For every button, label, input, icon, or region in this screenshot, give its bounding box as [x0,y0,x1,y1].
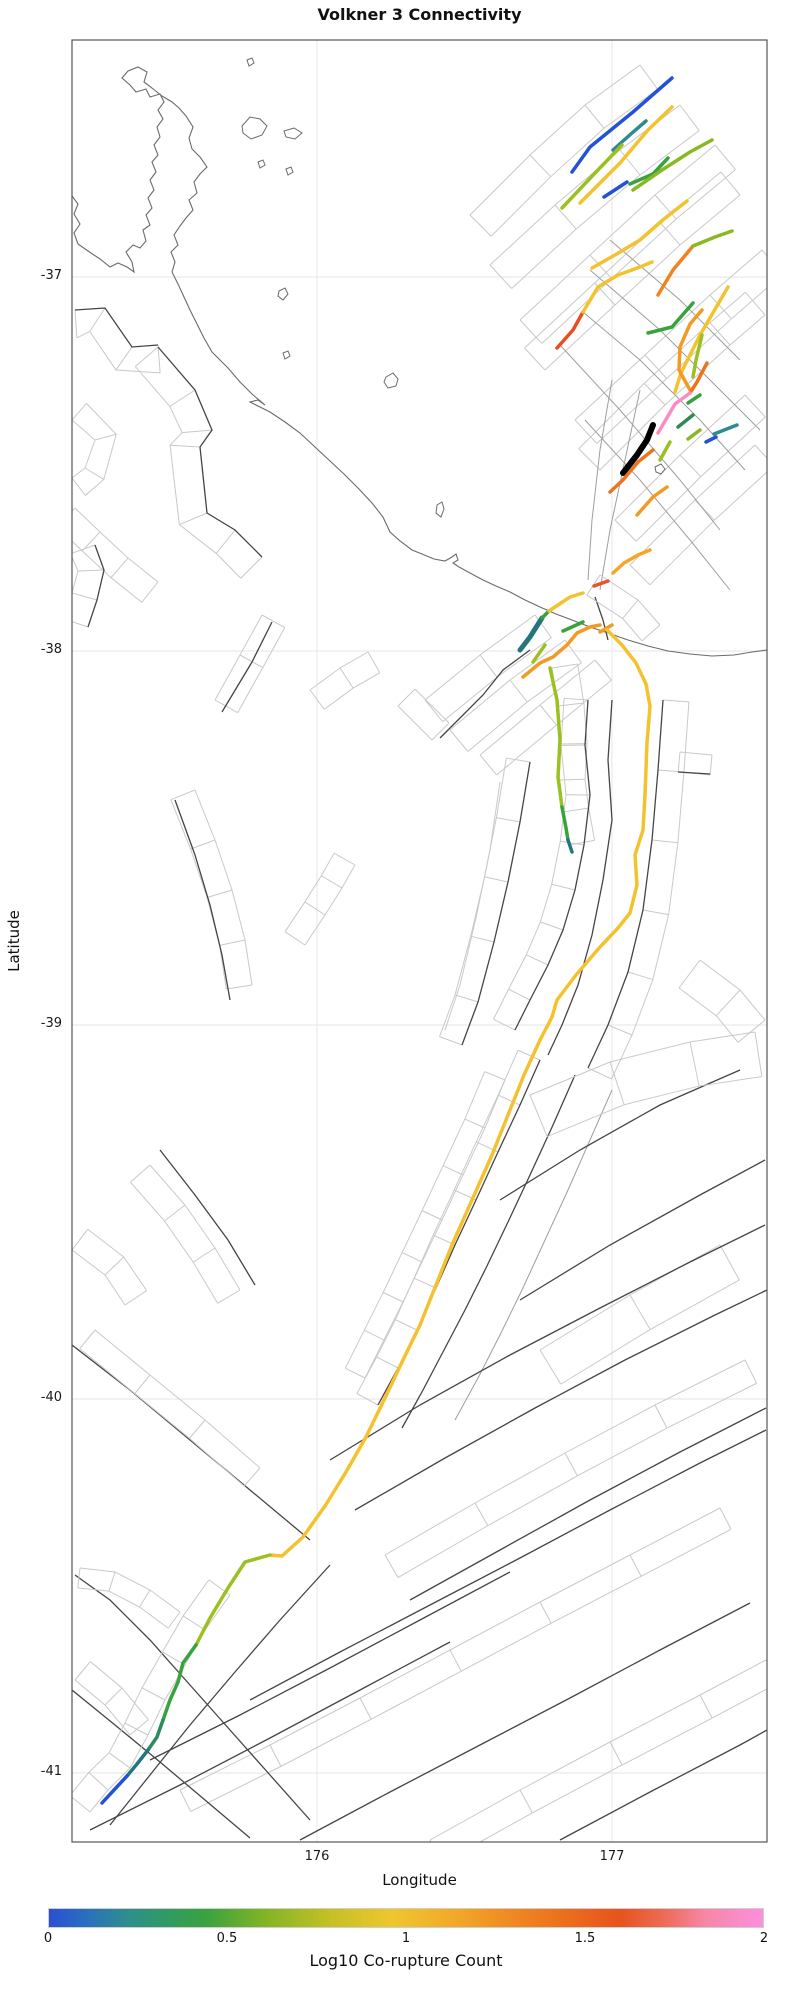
fault-trace-gray [160,1150,255,1285]
fault-trace-gray [72,420,95,478]
island-outline [283,351,290,359]
fault-polygon-rung [385,1555,398,1578]
colorbar [48,1908,764,1928]
figure: Volkner 3 Connectivity Latitude Longitud… [0,0,800,1989]
fault-polygon-edge [88,1229,147,1290]
fault-polygon-rung [89,1773,108,1790]
y-tick-label: -38 [0,642,62,657]
fault-polygon-rung [615,520,636,541]
fault-trace-gray [180,1508,720,1790]
fault-polygon-rung [480,755,497,775]
fault-trace-gray [305,865,355,945]
fault-polygon-rung [170,390,195,406]
fault-trace-gray [330,1225,765,1460]
co-rupture-trace [196,1555,270,1645]
fault-polygon-rung [655,1405,667,1428]
fault-polygon-rung [755,445,774,466]
fault-polygon-rung [414,1278,436,1288]
fault-polygon-rung [450,730,468,752]
fault-polygon-rung [526,955,548,965]
fault-polygon-rung [368,652,380,673]
fault-polygon-rung [660,222,680,245]
fault-polygon-edge [357,1050,518,1393]
fault-polygon-rung [745,395,765,417]
y-axis-label: Latitude [0,901,29,981]
fault-polygon-rung [398,689,415,706]
fault-trace-gray [250,1430,766,1700]
fault-trace-gray [530,1032,755,1095]
co-rupture-trace [580,107,672,203]
map-layers [57,40,783,1863]
co-rupture-trace [693,231,732,246]
fault-polygon-rung [721,172,740,195]
fault-trace-gray [402,1075,575,1428]
fault-polygon-rung [520,320,542,343]
co-rupture-trace [592,201,687,268]
fault-polygon-rung [72,1229,88,1250]
fault-trace-gray [588,700,663,1068]
fault-polygon-rung [710,323,730,345]
fault-polygon-rung [95,434,116,440]
fault-trace-gray [425,615,535,700]
fault-polygon-rung [510,680,527,702]
fault-polygon-rung [216,530,235,553]
fault-trace-gray [630,445,755,565]
co-rupture-trace [568,840,572,852]
fault-polygon-rung [552,884,575,890]
fault-trace-gray [398,706,432,740]
fault-polygon-rung [585,105,604,128]
fault-polygon-rung [430,1840,443,1863]
x-tick-label: 177 [590,1849,634,1864]
fault-polygon-rung [63,619,88,627]
x-tick-label: 176 [295,1849,339,1864]
fault-polygon-edge [398,1383,757,1577]
fault-trace-gray [470,65,640,215]
fault-trace-gray [222,622,272,712]
fault-polygon-rung [241,557,262,578]
co-rupture-trace [714,425,737,434]
fault-polygon-rung [745,1360,757,1383]
fault-polygon-edge [587,595,642,641]
fault-polygon-rung [207,890,232,897]
co-rupture-trace [148,1720,163,1750]
fault-polygon-rung [565,1453,577,1476]
co-rupture-trace [658,246,693,295]
co-rupture-trace [637,487,667,515]
fault-polygon-edge [285,853,334,931]
co-rupture-trace [563,622,583,631]
co-rupture-trace [163,1645,196,1720]
fault-trace-gray [450,640,565,730]
y-tick-label: -41 [0,1764,62,1779]
co-rupture-trace [549,593,583,611]
fault-polygon-rung [630,1295,650,1330]
fault-polygon-rung [191,840,215,849]
fault-polygon-rung [70,1796,90,1812]
fault-polygon-rung [530,1095,547,1137]
fault-polygon-rung [220,940,245,945]
fault-polygon-rung [623,600,638,618]
fault-polygon-rung [135,1375,150,1394]
fault-polygon-rung [720,1245,739,1280]
fault-polygon-rung [72,403,86,420]
co-rupture-trace [706,437,716,442]
fault-trace-gray [150,1165,240,1290]
fault-polygon-rung [630,1555,641,1576]
fault-polygon-rung [140,1590,150,1607]
fault-polygon-rung [555,205,576,229]
fault-polygon-rung [218,1290,240,1303]
colorbar-tick-label: 2 [742,1931,786,1946]
fault-polygon-rung [579,449,600,470]
fault-polygon-edge [63,554,78,619]
fault-polygon-rung [90,308,105,331]
island-outline [286,167,293,175]
co-rupture-trace [572,78,672,172]
fault-polygon-rung [485,1072,505,1080]
fault-polygon-rung [383,1292,403,1302]
co-rupture-trace [688,395,700,403]
fault-polygon-rung [105,1257,124,1275]
fault-trace-gray [72,1250,125,1305]
fault-trace-gray [445,782,500,1030]
fault-polygon-edge [547,1076,762,1136]
fault-polygon-rung [663,700,689,702]
fault-polygon-rung [540,1602,551,1623]
fault-polygon-rung [345,1368,365,1378]
fault-polygon-rung [520,1790,532,1813]
fault-polygon-edge [85,403,116,495]
fault-polygon-edge [494,698,566,1019]
fault-polygon-edge [561,1280,740,1384]
fault-polygon-rung [116,347,132,370]
fault-trace-gray [585,420,730,590]
fault-polygon-rung [450,1650,461,1671]
colorbar-label: Log10 Co-rupture Count [48,1951,764,1970]
fault-polygon-rung [630,565,650,585]
fault-polygon-rung [334,853,355,865]
fault-polygon-rung [710,755,712,775]
fault-polygon-rung [71,545,95,554]
fault-polygon-rung [643,910,669,915]
co-rupture-trace [678,415,693,427]
colorbar-tick-label: 1 [384,1931,428,1946]
fault-polygon-rung [715,145,735,170]
fault-polygon-rung [215,700,238,713]
fault-polygon-rung [171,790,195,800]
fault-polygon-rung [130,1165,150,1182]
fault-polygon-rung [680,105,699,131]
fault-polygon-rung [690,1042,699,1086]
fault-polygon-rung [285,932,305,945]
fault-polygon-rung [109,1753,130,1768]
fault-polygon-rung [471,936,494,942]
fault-polygon-rung [559,779,585,780]
fault-polygon-rung [561,745,585,746]
fault-trace-gray [560,345,720,530]
fault-polygon-rung [655,195,676,219]
fault-polygon-edge [542,170,736,344]
fault-polygon-rung [305,902,325,915]
fault-polygon-rung [540,922,563,930]
fault-trace-gray [595,597,608,640]
co-rupture-trace [613,550,650,573]
co-rupture-trace [270,630,650,1556]
fault-polygon-rung [111,558,128,578]
fault-polygon-rung [475,1503,488,1526]
fault-polygon-edge [238,628,285,713]
fault-polygon-rung [244,1468,260,1486]
fault-trace-gray [90,1642,450,1830]
island-outline [278,288,288,300]
fault-polygon-rung [321,876,342,888]
fault-polygon-rung [525,348,545,370]
fault-polygon-rung [645,355,667,378]
fault-polygon-rung [443,1166,463,1175]
fault-polygon-rung [168,1612,180,1628]
fault-polygon-rung [465,1119,485,1128]
fault-polygon-rung [78,570,104,571]
fault-polygon-rung [183,1616,205,1630]
fault-trace-gray [560,1730,767,1840]
island-outline [436,502,444,517]
island-outline [284,128,302,139]
fault-trace-gray [410,1408,766,1600]
fault-polygon-rung [595,660,611,680]
fault-polygon-rung [563,808,589,812]
fault-polygon-edge [612,702,689,1079]
fault-polygon-rung [75,1662,90,1680]
fault-polygon-edge [679,988,738,1042]
fault-polygon-rung [226,985,252,989]
co-rupture-trace [583,262,652,312]
map-canvas [0,0,800,1989]
fault-polygon-rung [564,698,588,700]
fault-trace-gray [88,545,104,627]
colorbar-tick-label: 1.5 [563,1931,607,1946]
fault-polygon-rung [105,1688,122,1705]
fault-polygon-rung [455,995,478,1002]
colorbar-tick-label: 0.5 [205,1931,249,1946]
fault-polygon-rung [470,215,491,236]
fault-polygon-rung [364,1330,384,1340]
fault-polygon-rung [72,478,85,495]
fault-polygon-rung [340,668,353,688]
fault-polygon-rung [762,250,783,274]
island-outline [247,58,254,66]
fault-polygon-rung [628,972,653,980]
y-tick-label: -40 [0,1390,62,1405]
colorbar-tick-label: 0 [26,1931,70,1946]
fault-polygon-rung [738,1020,765,1042]
fault-trace-gray [588,380,612,580]
island-outline [258,160,265,168]
fault-trace-gray [75,308,158,347]
fault-polygon-rung [642,625,660,641]
fault-polygon-rung [182,430,212,433]
fault-polygon-rung [262,615,285,628]
co-rupture-trace [610,450,653,492]
fault-polygon-rung [766,1660,778,1683]
fault-trace-gray [462,762,530,1045]
fault-polygon-rung [402,1253,422,1262]
fault-polygon-rung [193,1248,215,1262]
co-rupture-trace [633,140,712,190]
fault-polygon-rung [395,1320,417,1330]
fault-polygon-rung [640,65,658,89]
fault-polygon-rung [72,593,97,600]
fault-trace-gray [72,1345,310,1540]
coastline [72,67,767,656]
fault-polygon-rung [85,468,104,479]
fault-polygon-rung [142,1688,165,1700]
fault-polygon-rung [165,1205,185,1221]
fault-polygon-rung [440,1037,462,1045]
fault-polygon-rung [82,532,100,551]
co-rupture-trace [562,145,622,208]
fault-trace-gray [150,1572,510,1760]
fault-trace-gray [500,1070,740,1200]
fault-polygon-rung [678,752,680,772]
y-tick-label: -37 [0,268,62,283]
island-outline [384,373,398,388]
fault-polygon-rung [652,840,678,843]
fault-polygon-edge [324,673,380,710]
fault-polygon-rung [270,1745,281,1766]
fault-polygon-rung [240,655,263,668]
y-tick-label: -39 [0,1016,62,1031]
fault-polygon-edge [135,367,241,579]
fault-polygon-rung [109,1572,115,1591]
fault-polygon-rung [644,383,665,405]
fault-polygon-rung [180,1790,191,1811]
fault-polygon-rung [575,420,597,443]
fault-polygon-rung [190,1420,205,1438]
fault-trace-gray [520,1160,765,1300]
fault-polygon-rung [480,655,497,677]
fault-trace-gray [455,1090,612,1420]
fault-polygon-rung [716,990,740,1016]
fault-polygon-rung [755,1032,762,1076]
fault-polygon-rung [680,455,701,477]
island-outline [655,464,665,474]
fault-polygon-rung [540,1350,561,1384]
fault-polygon-rung [377,1357,398,1368]
fault-polygon-rung [425,700,443,722]
fault-polygon-rung [485,877,508,882]
fault-trace-gray [158,347,262,557]
fault-trace-gray [430,1660,766,1840]
fault-polygon-rung [360,1698,371,1719]
plot-border [72,40,767,1842]
fault-polygon-rung [540,705,557,725]
island-outline [242,117,267,139]
co-rupture-trace [658,393,690,433]
fault-trace-gray [72,1690,250,1838]
fault-polygon-rung [496,818,520,822]
fault-polygon-rung [422,1211,442,1220]
fault-polygon-edge [512,131,699,289]
co-rupture-trace [102,1776,127,1803]
fault-polygon-rung [679,960,700,988]
fault-trace-gray [545,195,740,370]
fault-polygon-rung [700,1695,712,1718]
fault-polygon-rung [509,989,530,1000]
fault-polygon-rung [530,155,551,177]
co-rupture-trace [660,442,670,460]
fault-trace-gray [385,1360,745,1555]
fault-polygon-rung [518,1050,540,1060]
fault-polygon-rung [552,664,578,668]
fault-polygon-rung [135,347,158,367]
fault-polygon-rung [179,513,207,525]
fault-polygon-rung [125,1291,147,1305]
fault-polygon-rung [75,310,77,338]
fault-polygon-rung [170,445,200,447]
fault-trace-gray [600,575,660,625]
x-axis-label: Longitude [72,1871,767,1889]
fault-trace-gray [600,390,640,590]
fault-polygon-rung [80,1330,95,1349]
fault-polygon-rung [142,582,158,602]
co-rupture-trace [520,618,542,650]
fault-polygon-edge [440,758,507,1037]
fault-polygon-rung [506,758,530,762]
fault-polygon-rung [720,1508,731,1529]
